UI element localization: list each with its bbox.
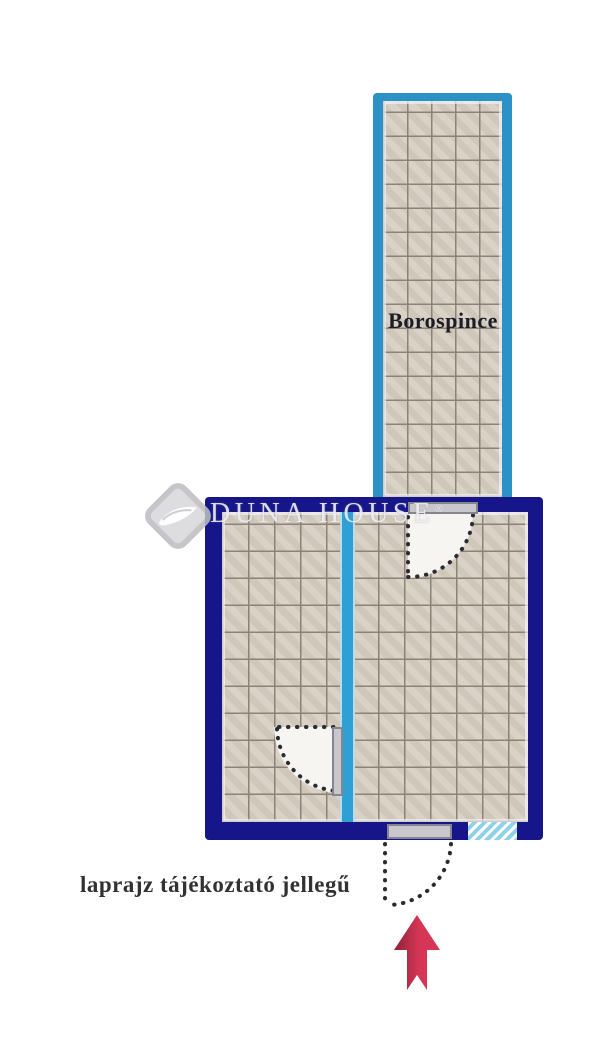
room-label-wine-cellar: Borospince [363, 308, 523, 334]
main-room-tiled-floor [222, 512, 528, 822]
duna-house-wordmark: DUNA HOUSE® [210, 498, 443, 530]
floorplan-canvas: Borospince DUNA HOUSE® laprajz tájékozta… [0, 0, 600, 1038]
corridor-tiled-floor [383, 101, 502, 497]
duna-house-diamond-logo-icon [140, 478, 216, 554]
door-arc-entrance [389, 844, 451, 905]
door-slab-entrance [387, 824, 452, 839]
arrow-shape [394, 915, 440, 990]
door-slab-left-room [332, 727, 343, 796]
registered-mark: ® [435, 503, 443, 515]
duna-house-watermark: DUNA HOUSE® [138, 474, 468, 558]
entrance-up-arrow-icon [388, 910, 448, 994]
window-hatch [468, 822, 517, 840]
brand-text: DUNA HOUSE [210, 498, 435, 529]
disclaimer-note: laprajz tájékoztató jellegű [80, 872, 350, 898]
